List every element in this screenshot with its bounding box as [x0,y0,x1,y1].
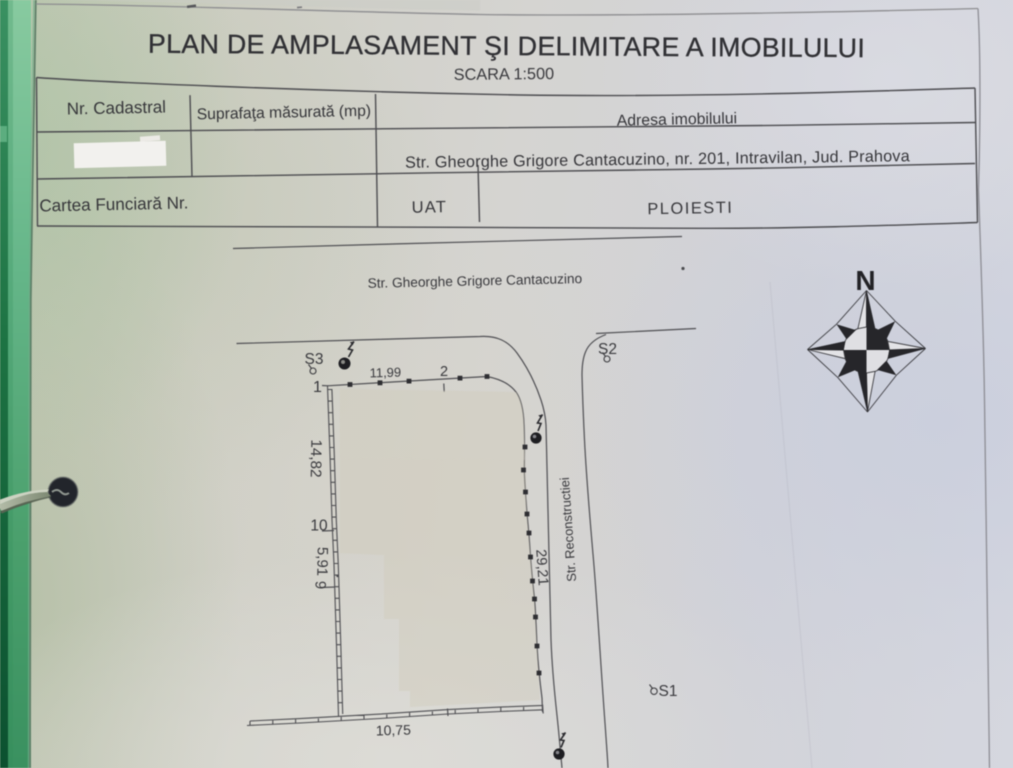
svg-text:29,21: 29,21 [532,549,550,586]
svg-text:1: 1 [313,379,322,396]
svg-text:9: 9 [311,581,328,590]
svg-text:Str. Gheorghe Grigore Cantacuz: Str. Gheorghe Grigore Cantacuzino, nr. 2… [405,147,910,172]
svg-text:10: 10 [310,518,328,535]
svg-text:PLAN DE AMPLASAMENT ŞI DELIMIT: PLAN DE AMPLASAMENT ŞI DELIMITARE A IMOB… [148,29,865,63]
svg-text:S1: S1 [659,683,678,700]
svg-text:Suprafaţa măsurată (mp): Suprafaţa măsurată (mp) [197,103,372,124]
svg-text:S3: S3 [305,351,324,368]
svg-text:14,82: 14,82 [307,439,325,477]
svg-text:UAT: UAT [412,198,448,217]
svg-text:Adresa imobilului: Adresa imobilului [617,110,738,130]
svg-text:2: 2 [440,364,448,380]
svg-text:S2: S2 [598,341,617,358]
svg-text:5,91: 5,91 [313,547,331,576]
svg-text:PLOIESTI: PLOIESTI [647,199,733,218]
svg-text:Str. Gheorghe Grigore Cantacuz: Str. Gheorghe Grigore Cantacuzino [367,271,582,291]
svg-text:10,75: 10,75 [376,722,412,739]
svg-text:SCARA 1:500: SCARA 1:500 [454,65,555,84]
svg-text:Nr. Cadastral: Nr. Cadastral [67,97,167,118]
svg-text:Str. Reconstructiei: Str. Reconstructiei [557,477,579,582]
svg-text:Cartea Funciară Nr.: Cartea Funciară Nr. [39,193,189,215]
svg-text:11,99: 11,99 [369,365,401,381]
